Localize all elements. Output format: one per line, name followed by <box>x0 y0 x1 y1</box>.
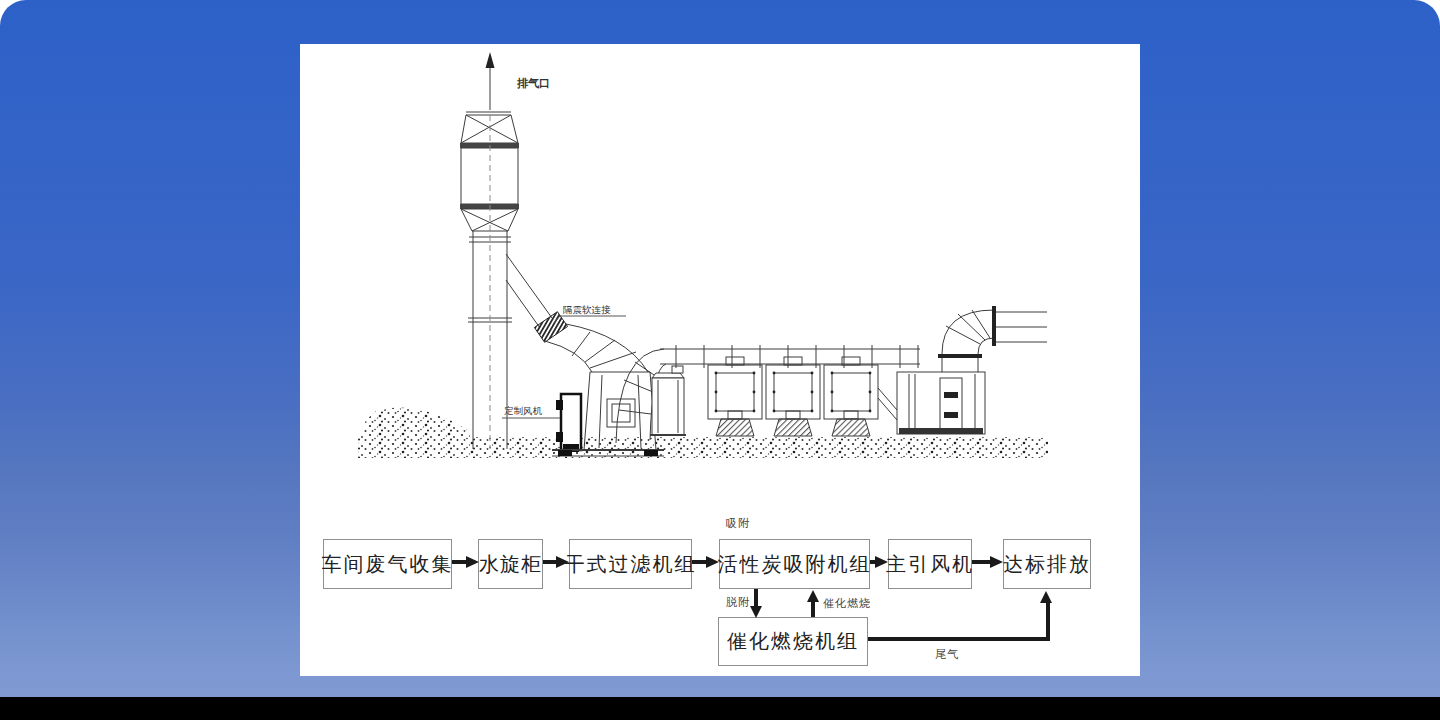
flow-arrow-1-head <box>466 556 479 568</box>
flow-box-label: 干式过滤机组 <box>565 551 697 578</box>
desorption-arrow-head <box>750 606 762 618</box>
flow-box-label: 达标排放 <box>1003 551 1091 578</box>
desorption-label: 脱附 <box>726 595 750 610</box>
process-flowchart: 车间废气收集 水旋柜 干式过滤机组 活性炭吸附机组 主引风机 达标排放 催化燃烧… <box>300 44 1140 676</box>
flow-box-label: 催化燃烧机组 <box>727 628 859 655</box>
tail-gas-line-vertical <box>1046 603 1050 641</box>
diagram-panel: 排气口 隔震软连接 <box>300 44 1140 676</box>
flow-box-label: 车间废气收集 <box>322 551 454 578</box>
flow-box-main-fan: 主引风机 <box>888 539 972 589</box>
flow-box-label: 活性炭吸附机组 <box>718 551 872 578</box>
flow-box-workshop-collection: 车间废气收集 <box>323 539 452 589</box>
flow-box-label: 水旋柜 <box>479 551 542 578</box>
flow-arrow-5 <box>972 560 990 564</box>
catalytic-arrow-head <box>807 590 819 602</box>
flow-arrow-5-head <box>990 556 1003 568</box>
flow-arrow-2-head <box>556 556 569 568</box>
flow-arrow-4-head <box>875 556 888 568</box>
desktop-background: 排气口 隔震软连接 <box>0 0 1440 697</box>
flow-arrow-1 <box>452 560 466 564</box>
catalytic-combustion-label: 催化燃烧 <box>823 596 871 611</box>
tail-gas-line-horizontal <box>868 637 1050 641</box>
tail-gas-label: 尾气 <box>935 647 959 662</box>
bottom-bar <box>0 697 1440 720</box>
flow-box-catalytic-combustion-unit: 催化燃烧机组 <box>718 617 868 666</box>
flow-box-water-spray-cabinet: 水旋柜 <box>478 539 543 589</box>
flow-box-dry-filter-unit: 干式过滤机组 <box>569 539 692 589</box>
adsorption-label: 吸附 <box>726 516 750 531</box>
desorption-arrow <box>754 589 758 606</box>
flow-box-label: 主引风机 <box>886 551 974 578</box>
flow-arrow-2 <box>543 560 556 564</box>
flow-box-compliant-discharge: 达标排放 <box>1003 539 1091 589</box>
catalytic-arrow <box>811 602 815 617</box>
tail-gas-arrow-head <box>1040 591 1052 603</box>
flow-box-activated-carbon-unit: 活性炭吸附机组 <box>719 539 870 589</box>
flow-arrow-3 <box>692 560 706 564</box>
flow-arrow-3-head <box>706 556 719 568</box>
